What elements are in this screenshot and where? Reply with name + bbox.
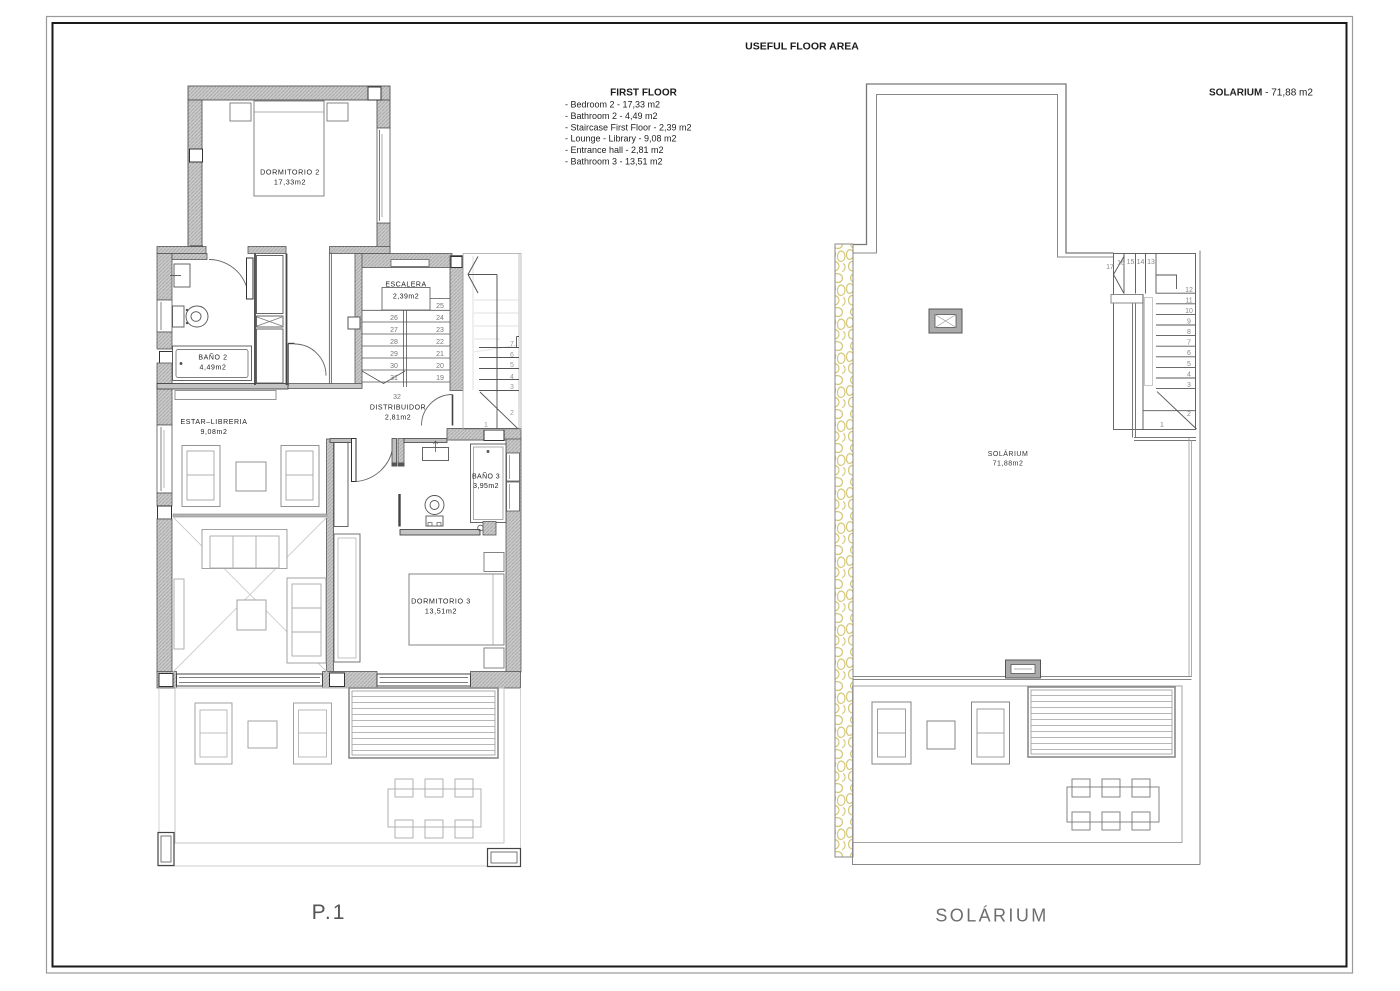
svg-text:13,51m2: 13,51m2 [425,607,457,616]
svg-text:BAÑO 3: BAÑO 3 [472,472,500,481]
svg-text:1: 1 [484,422,488,429]
svg-text:3: 3 [510,384,514,391]
svg-text:25: 25 [436,303,444,310]
svg-text:4: 4 [1187,372,1191,379]
svg-text:1: 1 [1160,422,1164,429]
svg-text:7: 7 [1187,340,1191,347]
svg-text:20: 20 [436,363,444,370]
svg-text:SOLARIUM - 71,88 m2: SOLARIUM - 71,88 m2 [1209,88,1313,99]
svg-text:2: 2 [1187,411,1191,418]
svg-text:31: 31 [390,375,398,382]
svg-text:15: 15 [1127,259,1135,266]
svg-text:2: 2 [510,410,514,417]
svg-text:17: 17 [1106,264,1114,271]
svg-text:5: 5 [1187,361,1191,368]
svg-text:4,49m2: 4,49m2 [200,365,227,372]
svg-text:2,81m2: 2,81m2 [385,415,411,422]
svg-text:4: 4 [510,374,514,381]
svg-text:13: 13 [1147,259,1155,266]
svg-text:16: 16 [1117,260,1125,267]
svg-text:DISTRIBUIDOR: DISTRIBUIDOR [370,405,426,412]
svg-text:17,33m2: 17,33m2 [274,178,306,187]
svg-text:- Bathroom 2 - 4,49 m2: - Bathroom 2 - 4,49 m2 [565,111,658,121]
svg-text:3,95m2: 3,95m2 [473,483,499,490]
svg-text:30: 30 [390,363,398,370]
svg-text:USEFUL FLOOR AREA: USEFUL FLOOR AREA [745,41,859,53]
svg-text:DORMITORIO 2: DORMITORIO 2 [260,168,320,177]
svg-text:DORMITORIO 3: DORMITORIO 3 [411,597,471,606]
svg-text:28: 28 [390,339,398,346]
svg-text:11: 11 [1185,298,1192,305]
svg-text:- Entrance hall - 2,81 m2: - Entrance hall - 2,81 m2 [565,145,664,155]
svg-text:24: 24 [436,315,444,322]
svg-text:6: 6 [1187,350,1191,357]
svg-text:ESCALERA: ESCALERA [385,282,426,289]
svg-text:9: 9 [1187,319,1191,326]
svg-text:SOLÁRIUM: SOLÁRIUM [988,449,1029,458]
svg-text:P.1: P.1 [312,901,347,924]
svg-text:BAÑO 2: BAÑO 2 [198,353,227,362]
svg-text:- Bedroom 2 - 17,33 m2: - Bedroom 2 - 17,33 m2 [565,100,660,110]
svg-text:7: 7 [510,341,514,348]
svg-text:32: 32 [393,394,401,401]
svg-text:12: 12 [1185,287,1193,294]
svg-text:71,88m2: 71,88m2 [993,461,1024,468]
svg-text:29: 29 [390,351,398,358]
svg-text:2,39m2: 2,39m2 [393,294,419,301]
svg-text:6: 6 [510,352,514,359]
svg-text:23: 23 [436,327,444,334]
svg-text:27: 27 [390,327,398,334]
svg-text:21: 21 [436,351,444,358]
svg-text:19: 19 [436,375,444,382]
svg-text:3: 3 [1187,382,1191,389]
svg-text:26: 26 [390,315,398,322]
svg-text:5: 5 [510,362,514,369]
svg-text:9,08m2: 9,08m2 [201,429,228,436]
svg-text:- Staircase First Floor - 2,39: - Staircase First Floor - 2,39 m2 [565,122,692,132]
svg-text:8: 8 [1187,329,1191,336]
svg-text:22: 22 [436,339,444,346]
svg-text:FIRST FLOOR: FIRST FLOOR [610,88,677,99]
svg-text:SOLÁRIUM: SOLÁRIUM [935,906,1048,926]
svg-text:- Lounge - Library - 9,08 m2: - Lounge - Library - 9,08 m2 [565,134,677,144]
svg-text:ESTAR–LIBRERIA: ESTAR–LIBRERIA [180,419,247,426]
svg-text:10: 10 [1185,308,1193,315]
svg-text:14: 14 [1137,259,1145,266]
svg-text:- Bathroom 3 - 13,51 m2: - Bathroom 3 - 13,51 m2 [565,157,663,167]
